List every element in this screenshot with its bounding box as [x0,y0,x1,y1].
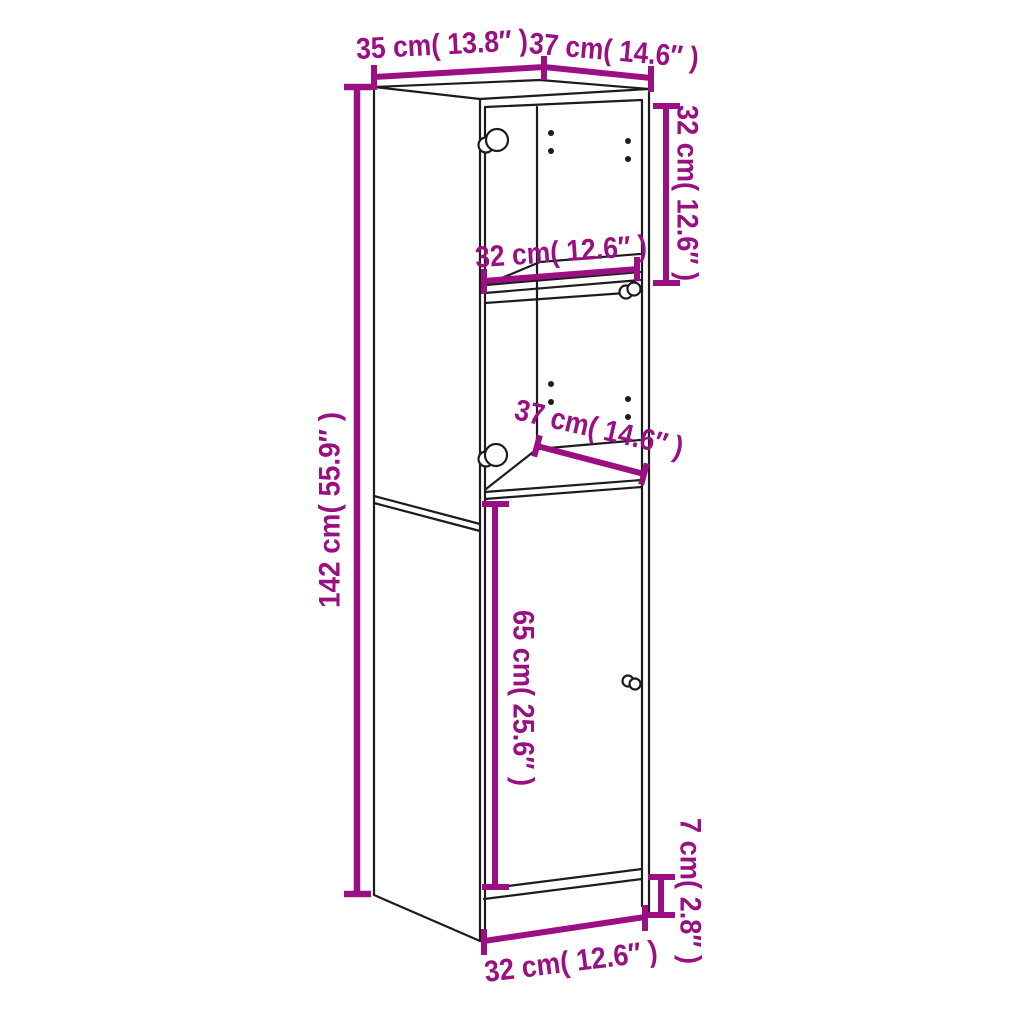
product-dimension-diagram: 35 cm( 13.8″ ) 37 cm( 14.6″ ) 32 cm( 12.… [0,0,1024,1024]
cabinet-frame-inner-lines [374,100,642,936]
lower-door-knob [630,679,641,690]
dimension-door-height: 65 cm( 25.6″ ) [482,504,540,887]
dimension-annotations: 35 cm( 13.8″ ) 37 cm( 14.6″ ) 32 cm( 12.… [314,24,707,989]
dim-label-plinth-height: 7 cm( 2.8″ ) [674,818,707,964]
dimension-door-width: 32 cm( 12.6″ ) [483,905,660,989]
cabinet-line-art [374,80,649,941]
dimension-plinth-height: 7 cm( 2.8″ ) [648,818,707,964]
upper-glass-door-knob [486,129,508,151]
dim-label-door-height: 65 cm( 25.6″ ) [507,610,540,786]
dimension-top-width: 37 cm( 14.6″ ) [528,27,700,92]
dim-line [344,87,371,894]
dim-line [648,877,675,915]
pin-hole [548,148,554,154]
dim-label-total-height: 142 cm( 55.9″ ) [314,412,347,608]
dim-label-top-depth: 35 cm( 13.8″ ) [355,24,528,66]
dim-label-door-width: 32 cm( 12.6″ ) [483,935,660,989]
pin-hole [548,130,554,136]
dimension-upper-section-height: 32 cm( 12.6″ ) [653,105,704,283]
dim-label-upper-section-height: 32 cm( 12.6″ ) [671,105,704,281]
pin-hole [548,381,554,387]
dimension-total-height: 142 cm( 55.9″ ) [314,87,372,894]
shelf-support-peg [628,283,641,296]
pin-hole [625,138,631,144]
dimension-interior-depth: 37 cm( 14.6″ ) [511,394,686,485]
diagram-canvas: 35 cm( 13.8″ ) 37 cm( 14.6″ ) 32 cm( 12.… [0,0,1024,1024]
middle-glass-door-knob [485,444,507,466]
cabinet-outline [374,80,649,941]
pin-hole [625,156,631,162]
pin-hole [625,396,631,402]
